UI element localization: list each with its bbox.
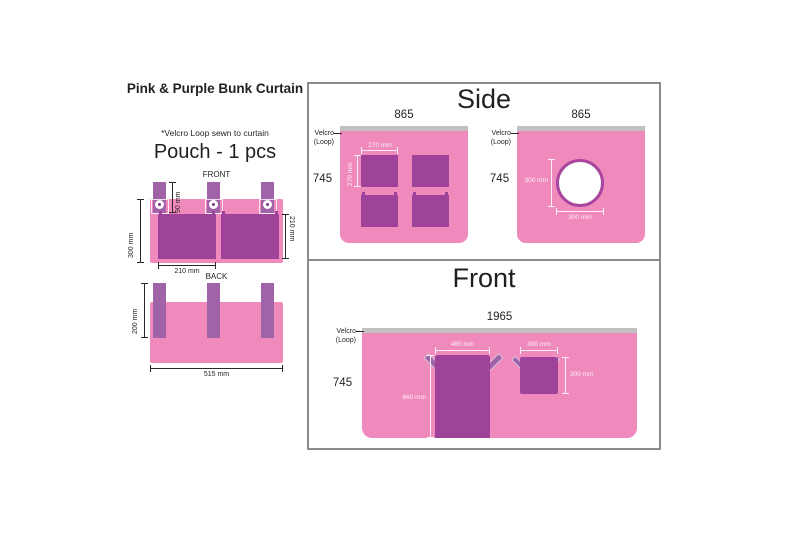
dim-label-door-width: 480 mm [428, 341, 497, 348]
dim-line-window-height [565, 357, 566, 394]
velcro-line1: Velcro [483, 129, 511, 138]
snap-button-icon [209, 200, 218, 209]
side-left-width-label: 865 [340, 109, 468, 121]
dim-line-window-height [357, 155, 358, 187]
dim-label-pouch-width: 515 mm [150, 371, 283, 378]
front-door-opening-shape [435, 355, 490, 438]
side-window-shape [412, 195, 449, 227]
velcro-note: *Velcro Loop sewn to curtain [118, 128, 312, 138]
side-right-height-label: 745 [486, 173, 513, 185]
velcro-line2: (Loop) [306, 138, 334, 147]
side-left-velcro-strip [340, 126, 468, 131]
dim-line-pocket-depth [285, 214, 286, 259]
dim-line-door-height [430, 355, 431, 438]
front-height-label: 745 [329, 377, 356, 389]
snap-button-icon [263, 200, 272, 209]
pouch-back-label: BACK [150, 272, 283, 281]
dim-line-hole-height [551, 159, 552, 207]
dim-line-window-width [520, 350, 558, 351]
dim-label-pocket-depth: 210 mm [288, 216, 295, 259]
dim-label-window-width: 300 mm [510, 341, 568, 348]
side-window-shape [412, 155, 449, 187]
pouch-heading: Pouch - 1 pcs [118, 141, 312, 164]
dim-line-pouch-height [140, 199, 141, 263]
velcro-line2: (Loop) [328, 336, 356, 345]
front-curtain-shape [362, 328, 637, 438]
dim-label-door-height: 660 mm [396, 394, 426, 401]
dim-label-tab-height: 90 mm [175, 183, 182, 213]
pouch-back-strap-shape [261, 283, 274, 338]
dim-line-strap-height [144, 283, 145, 338]
front-velcro-strip [362, 328, 637, 333]
front-window-opening-shape [520, 357, 558, 394]
dim-label-hole-width: 300 mm [556, 214, 604, 221]
velcro-pointer-line [511, 133, 519, 134]
page-title: Pink & Purple Bunk Curtain [118, 81, 312, 96]
side-left-height-label: 745 [309, 173, 336, 185]
dim-label-strap-height: 200 mm [132, 288, 139, 334]
velcro-pointer-line [356, 331, 364, 332]
panels-divider-line [307, 259, 661, 261]
velcro-line2: (Loop) [483, 138, 511, 147]
side-right-velcro-label: Velcro (Loop) [483, 129, 511, 147]
pouch-front-label: FRONT [150, 170, 283, 179]
pouch-back-strap-shape [153, 283, 166, 338]
dim-label-window-width: 270 mm [354, 142, 406, 149]
pouch-back-strap-shape [207, 283, 220, 338]
side-right-velcro-strip [517, 126, 645, 131]
side-left-velcro-label: Velcro (Loop) [306, 129, 334, 147]
dim-label-pouch-height: 300 mm [128, 206, 135, 258]
pouch-pocket-shape [221, 214, 279, 259]
velcro-line1: Velcro [306, 129, 334, 138]
dim-label-window-height: 270 mm [347, 157, 354, 186]
side-right-width-label: 865 [517, 109, 645, 121]
dim-line-pocket-width [158, 265, 216, 266]
side-window-shape [361, 155, 398, 187]
dim-line-window-width [361, 150, 398, 151]
pouch-pocket-shape [158, 214, 216, 259]
front-velcro-label: Velcro (Loop) [328, 327, 356, 345]
dim-label-window-height: 300 mm [570, 371, 600, 378]
side-window-shape [361, 195, 398, 227]
dim-line-door-width [435, 350, 490, 351]
side-porthole-shape [556, 159, 604, 207]
dim-label-hole-height: 300 mm [520, 177, 548, 184]
dim-line-tab-height [172, 182, 173, 213]
velcro-pointer-line [334, 133, 342, 134]
front-panel-title: Front [307, 263, 661, 294]
front-width-label: 1965 [362, 311, 637, 323]
dim-line-pouch-width [150, 368, 283, 369]
velcro-line1: Velcro [328, 327, 356, 336]
snap-button-icon [155, 200, 164, 209]
bunk-curtain-diagram: Pink & Purple Bunk Curtain *Velcro Loop … [0, 0, 800, 533]
dim-line-hole-width [556, 211, 604, 212]
